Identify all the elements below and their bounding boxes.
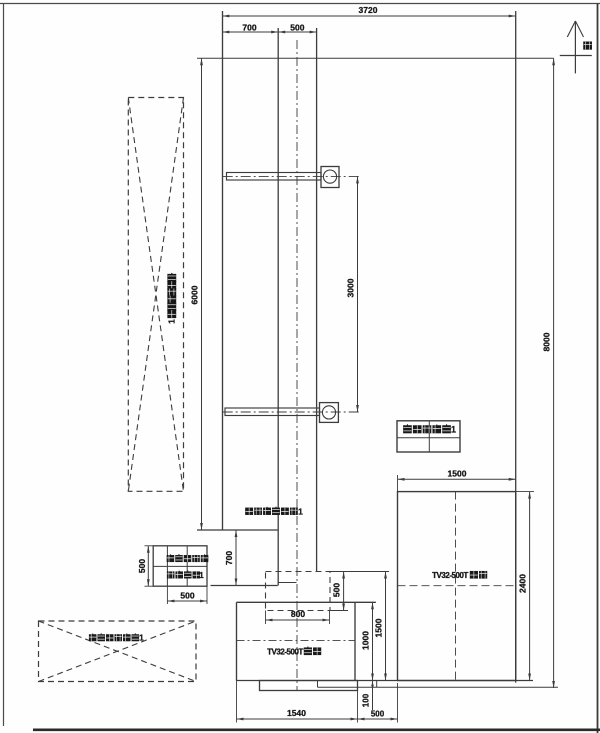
svg-text:700: 700 — [242, 23, 256, 33]
svg-text:1500: 1500 — [374, 618, 384, 637]
svg-text:100: 100 — [362, 693, 371, 707]
svg-text:1500: 1500 — [448, 468, 467, 478]
svg-text:500: 500 — [332, 583, 342, 597]
svg-text:1000: 1000 — [361, 631, 371, 650]
svg-text:500: 500 — [371, 710, 385, 719]
svg-text:TV32-500T: TV32-500T — [432, 571, 468, 580]
svg-text:500: 500 — [180, 591, 194, 601]
svg-text:2400: 2400 — [518, 574, 528, 593]
svg-text:1540: 1540 — [287, 708, 306, 718]
svg-text:700: 700 — [224, 551, 234, 565]
svg-text:1: 1 — [298, 506, 303, 516]
svg-text:8000: 8000 — [542, 332, 552, 351]
svg-text:6000: 6000 — [190, 285, 200, 304]
svg-text:1: 1 — [168, 319, 177, 324]
svg-text:1: 1 — [199, 571, 204, 580]
svg-text:800: 800 — [291, 609, 305, 619]
svg-text:TV32-500T: TV32-500T — [267, 647, 303, 656]
svg-text:1: 1 — [451, 425, 456, 435]
svg-text:500: 500 — [290, 23, 304, 33]
svg-text:1: 1 — [139, 634, 144, 643]
svg-text:3720: 3720 — [359, 5, 378, 15]
svg-text:3000: 3000 — [346, 278, 356, 297]
svg-text:500: 500 — [137, 559, 147, 573]
